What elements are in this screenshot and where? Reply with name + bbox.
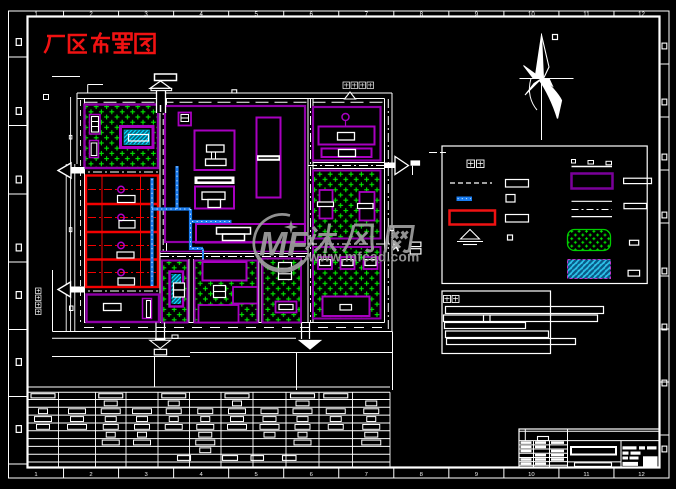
svg-text:3: 3 xyxy=(144,11,148,18)
svg-text:MF: MF xyxy=(259,226,309,264)
svg-text:9: 9 xyxy=(475,11,479,18)
svg-text:10: 10 xyxy=(528,11,535,18)
svg-text:7: 7 xyxy=(365,472,368,478)
svg-text:2: 2 xyxy=(89,472,92,478)
svg-text:3: 3 xyxy=(144,472,148,478)
svg-text:8: 8 xyxy=(420,472,424,478)
svg-text:9: 9 xyxy=(475,472,478,478)
svg-text:12: 12 xyxy=(638,472,645,478)
svg-text:6: 6 xyxy=(310,11,314,18)
svg-text:12: 12 xyxy=(638,11,645,18)
svg-text:11: 11 xyxy=(583,11,590,18)
svg-text:6: 6 xyxy=(310,472,314,478)
svg-text:www.mfcad.com: www.mfcad.com xyxy=(308,250,420,265)
svg-text:5: 5 xyxy=(255,472,259,478)
svg-text:1: 1 xyxy=(34,472,37,478)
svg-text:4: 4 xyxy=(200,472,204,478)
svg-text:10: 10 xyxy=(528,472,535,478)
svg-text:11: 11 xyxy=(583,472,589,478)
